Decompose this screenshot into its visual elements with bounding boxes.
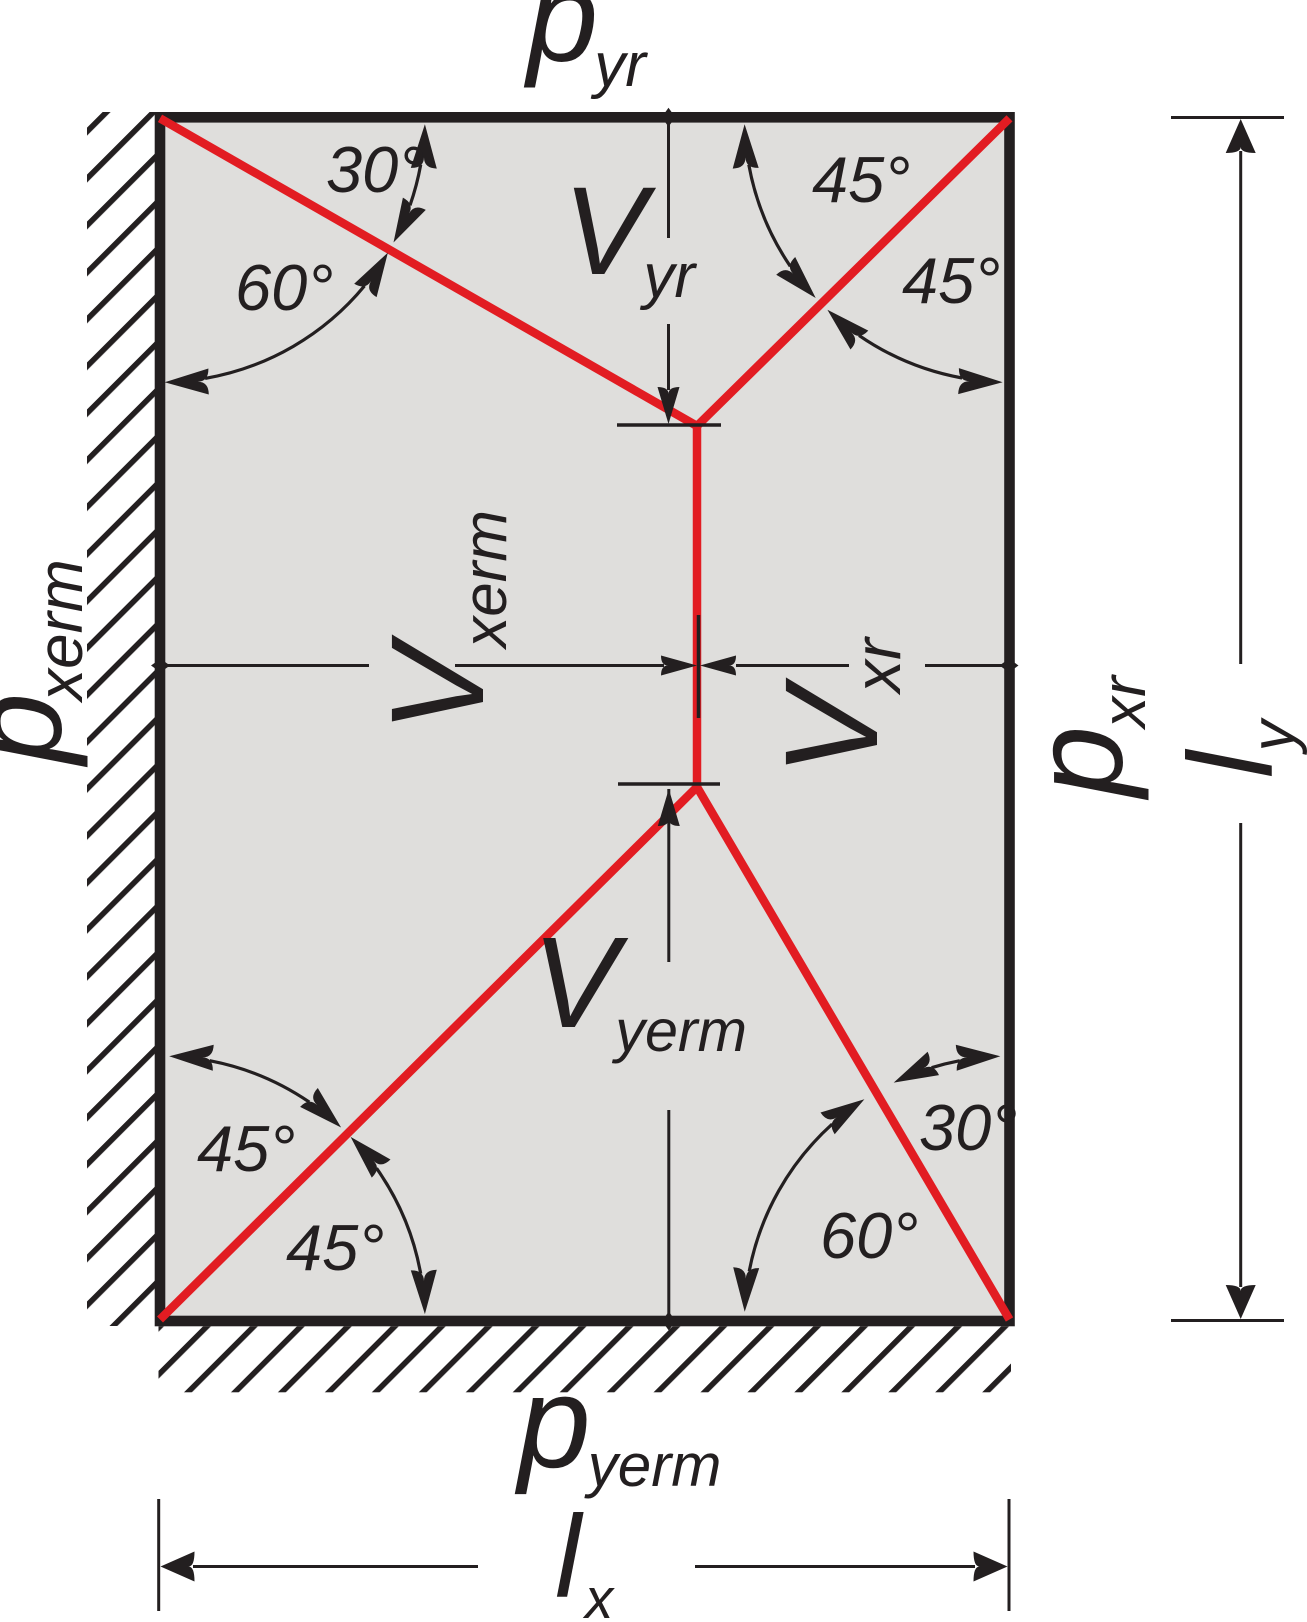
svg-text:45°: 45° — [902, 244, 1000, 317]
svg-text:45°: 45° — [286, 1211, 384, 1284]
svg-text:45°: 45° — [197, 1112, 295, 1185]
svg-text:60°: 60° — [820, 1199, 918, 1272]
svg-text:30°: 30° — [919, 1091, 1017, 1164]
svg-text:30°: 30° — [326, 133, 424, 206]
svg-text:45°: 45° — [812, 143, 910, 216]
svg-text:60°: 60° — [235, 251, 333, 324]
